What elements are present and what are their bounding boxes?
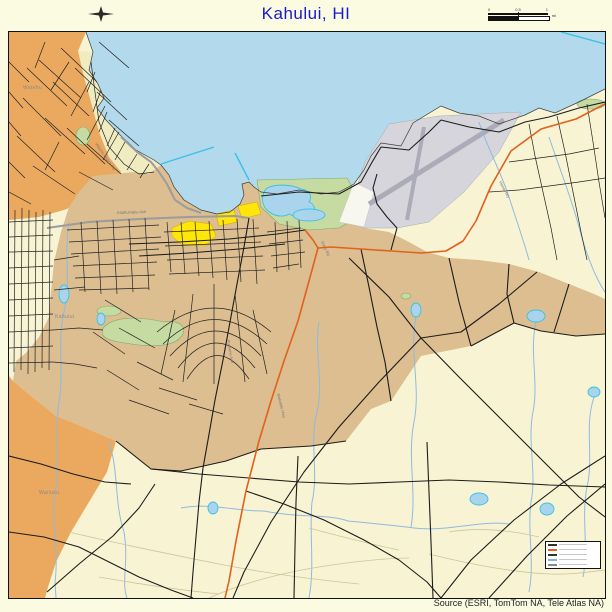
- scale-bar: 0 0.5 1 mi: [486, 7, 556, 21]
- scale-bar-miles: [488, 13, 548, 15]
- pond: [540, 503, 554, 515]
- scale-bar-km: [488, 16, 550, 22]
- legend-box: [545, 541, 601, 569]
- pond: [293, 209, 325, 221]
- label-kahului: Kahului: [55, 314, 74, 320]
- label-waiehu: Waiehu: [23, 85, 42, 91]
- pond: [470, 493, 488, 505]
- pond: [59, 285, 69, 303]
- label-kaahumanu-ave: Kaahumanu Ave: [117, 209, 147, 215]
- scale-tick: 1: [546, 7, 548, 12]
- pond: [588, 387, 600, 397]
- map-canvas: Waiehu Kahului Wailuku Hana Hwy Mokulele…: [8, 31, 606, 599]
- pond: [527, 310, 545, 322]
- map-image: Waiehu Kahului Wailuku Hana Hwy Mokulele…: [9, 32, 605, 598]
- scale-tick: 0: [488, 7, 490, 12]
- legend-rows: [548, 544, 598, 567]
- pond: [208, 502, 218, 514]
- label-wailuku: Wailuku: [39, 490, 59, 496]
- park-patch: [401, 293, 411, 299]
- park-patch: [76, 127, 90, 145]
- source-attribution: Source (ESRI, TomTom NA, Tele Atlas NA): [434, 598, 604, 608]
- pond: [411, 303, 421, 317]
- pond: [97, 313, 105, 325]
- scale-unit: mi: [552, 13, 556, 18]
